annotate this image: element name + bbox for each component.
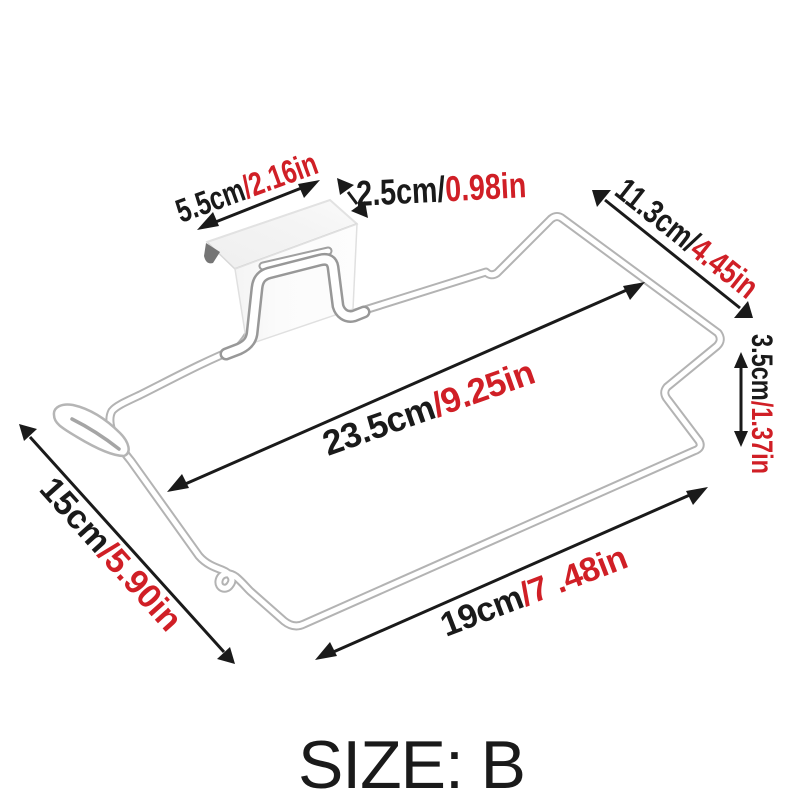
svg-text:3.5cm/1.37in: 3.5cm/1.37in bbox=[745, 334, 778, 474]
svg-text:SIZE: B: SIZE: B bbox=[298, 727, 526, 800]
